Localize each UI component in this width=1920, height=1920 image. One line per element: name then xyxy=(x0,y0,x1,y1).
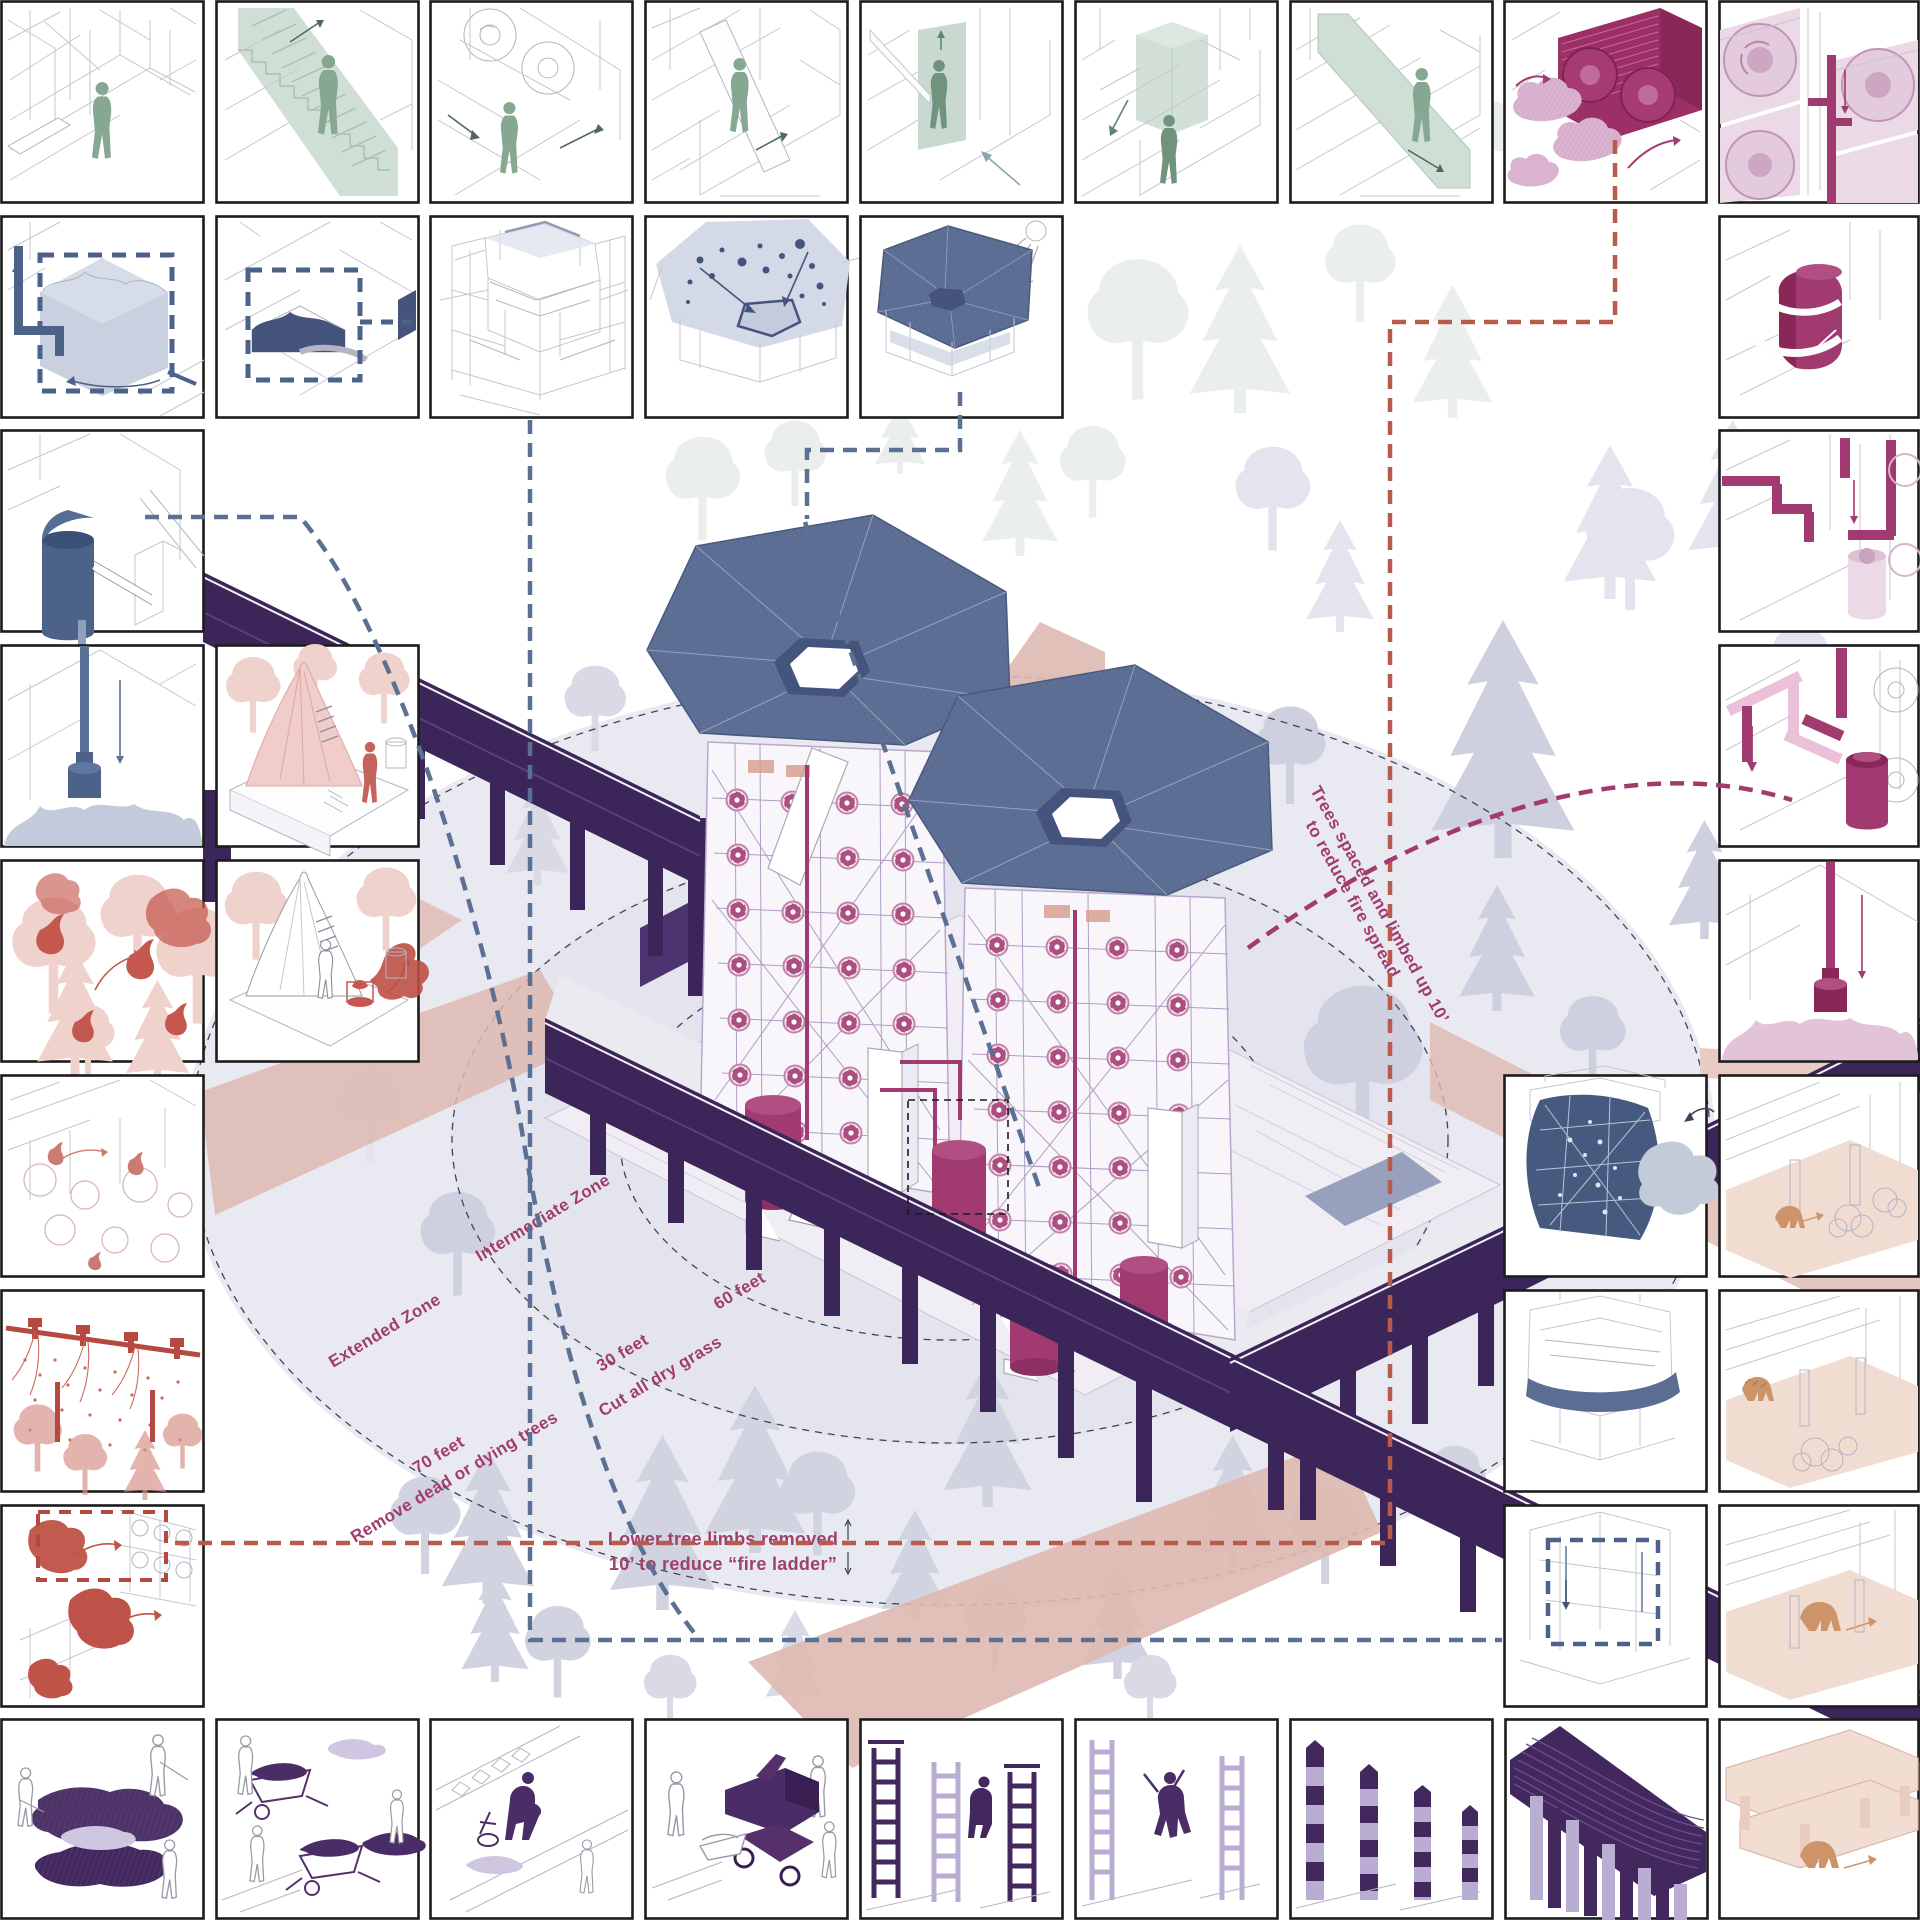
svg-text:10’ to reduce “fire ladder”: 10’ to reduce “fire ladder” xyxy=(609,1554,837,1574)
